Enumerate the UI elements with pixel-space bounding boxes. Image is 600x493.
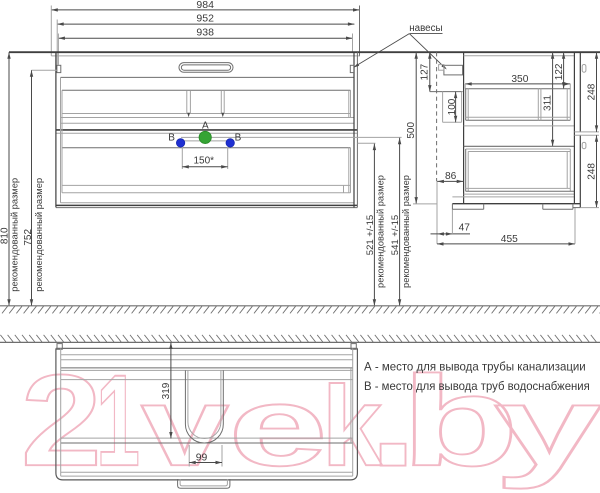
svg-text:A: A bbox=[202, 121, 209, 132]
svg-text:рекомендованный размер: рекомендованный размер bbox=[401, 175, 411, 288]
svg-text:рекомендованный размер: рекомендованный размер bbox=[376, 175, 386, 288]
svg-text:122: 122 bbox=[554, 63, 565, 80]
svg-text:952: 952 bbox=[196, 13, 214, 25]
svg-text:150*: 150* bbox=[194, 155, 215, 166]
svg-text:рекомендованный размер: рекомендованный размер bbox=[33, 178, 44, 292]
svg-text:541 +/-15: 541 +/-15 bbox=[390, 215, 401, 255]
svg-text:навесы: навесы bbox=[409, 23, 442, 34]
svg-text:86: 86 bbox=[445, 171, 457, 182]
svg-text:1: 1 bbox=[96, 347, 140, 493]
svg-text:248: 248 bbox=[587, 83, 598, 100]
svg-text:311: 311 bbox=[543, 95, 554, 111]
svg-text:2: 2 bbox=[21, 347, 102, 493]
svg-text:500: 500 bbox=[406, 122, 417, 139]
svg-text:А - место для вывода трубы кан: А - место для вывода трубы канализации bbox=[364, 359, 586, 373]
svg-text:99: 99 bbox=[196, 453, 208, 464]
svg-text:938: 938 bbox=[196, 27, 214, 39]
svg-text:B: B bbox=[235, 133, 242, 144]
svg-text:455: 455 bbox=[501, 234, 518, 245]
svg-text:350: 350 bbox=[511, 74, 528, 85]
svg-text:127: 127 bbox=[419, 63, 430, 80]
svg-text:521 +/-15: 521 +/-15 bbox=[365, 215, 376, 255]
svg-text:47: 47 bbox=[459, 222, 471, 233]
svg-text:319: 319 bbox=[161, 382, 172, 399]
svg-text:В - место для вывода труб водо: В - место для вывода труб водоснабжения bbox=[364, 379, 590, 393]
svg-text:984: 984 bbox=[196, 0, 214, 11]
svg-text:B: B bbox=[168, 133, 175, 144]
svg-text:рекомендованный размер: рекомендованный размер bbox=[8, 178, 19, 292]
svg-text:e: e bbox=[229, 363, 328, 489]
svg-text:100: 100 bbox=[447, 98, 458, 115]
svg-text:248: 248 bbox=[587, 163, 598, 180]
